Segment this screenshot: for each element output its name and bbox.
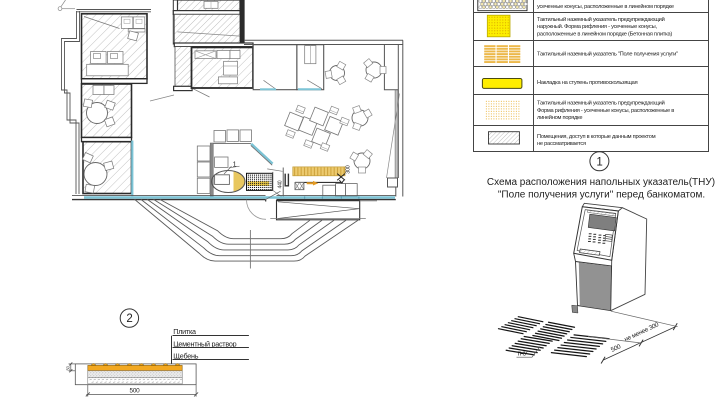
svg-text:Тактильный наземный указатель: Тактильный наземный указатель предупрежд…: [537, 16, 665, 23]
svg-text:Тактильный наземный указатель: Тактильный наземный указатель "Поле полу…: [537, 51, 678, 58]
svg-text:1: 1: [596, 156, 602, 168]
svg-text:Цементный раствор: Цементный раствор: [173, 339, 236, 348]
svg-text:Схема расположения напольных у: Схема расположения напольных указатель(Т…: [487, 177, 715, 188]
svg-text:расположенные в линейном поряд: расположенные в линейном порядке (Бетонн…: [537, 31, 672, 38]
svg-text:Плитка: Плитка: [173, 327, 196, 336]
svg-text:Форма рифления - усеченные кон: Форма рифления - усеченные конусы, распо…: [537, 108, 674, 114]
svg-text:наружный. Форма рифления - усе: наружный. Форма рифления - усеченные кон…: [537, 0, 657, 1]
svg-text:Тактильный наземный указатель: Тактильный наземный указатель предупрежд…: [537, 99, 665, 106]
svg-text:300: 300: [346, 165, 352, 173]
svg-text:500: 500: [130, 388, 141, 395]
svg-text:440: 440: [277, 180, 283, 188]
svg-text:Накладка на ступень противоско: Накладка на ступень противоскользящая: [537, 80, 638, 86]
svg-text:Помещения, доступ в которые да: Помещения, доступ в которые данным проек…: [537, 134, 656, 140]
svg-text:линейном порядке: линейном порядке: [537, 114, 582, 121]
svg-text:ТНУ: ТНУ: [517, 351, 528, 357]
svg-text:не рассматривается: не рассматривается: [537, 141, 586, 147]
svg-text:усеченные конусы, расположенны: усеченные конусы, расположенные в линейн…: [537, 3, 674, 10]
svg-text:"Поле получения услуги" пере: "Поле получения услуги" перед банкоматом…: [498, 188, 705, 200]
svg-text:2: 2: [126, 313, 132, 325]
svg-text:наружный. Форма рифления - усе: наружный. Форма рифления - усеченные кон…: [537, 23, 657, 30]
